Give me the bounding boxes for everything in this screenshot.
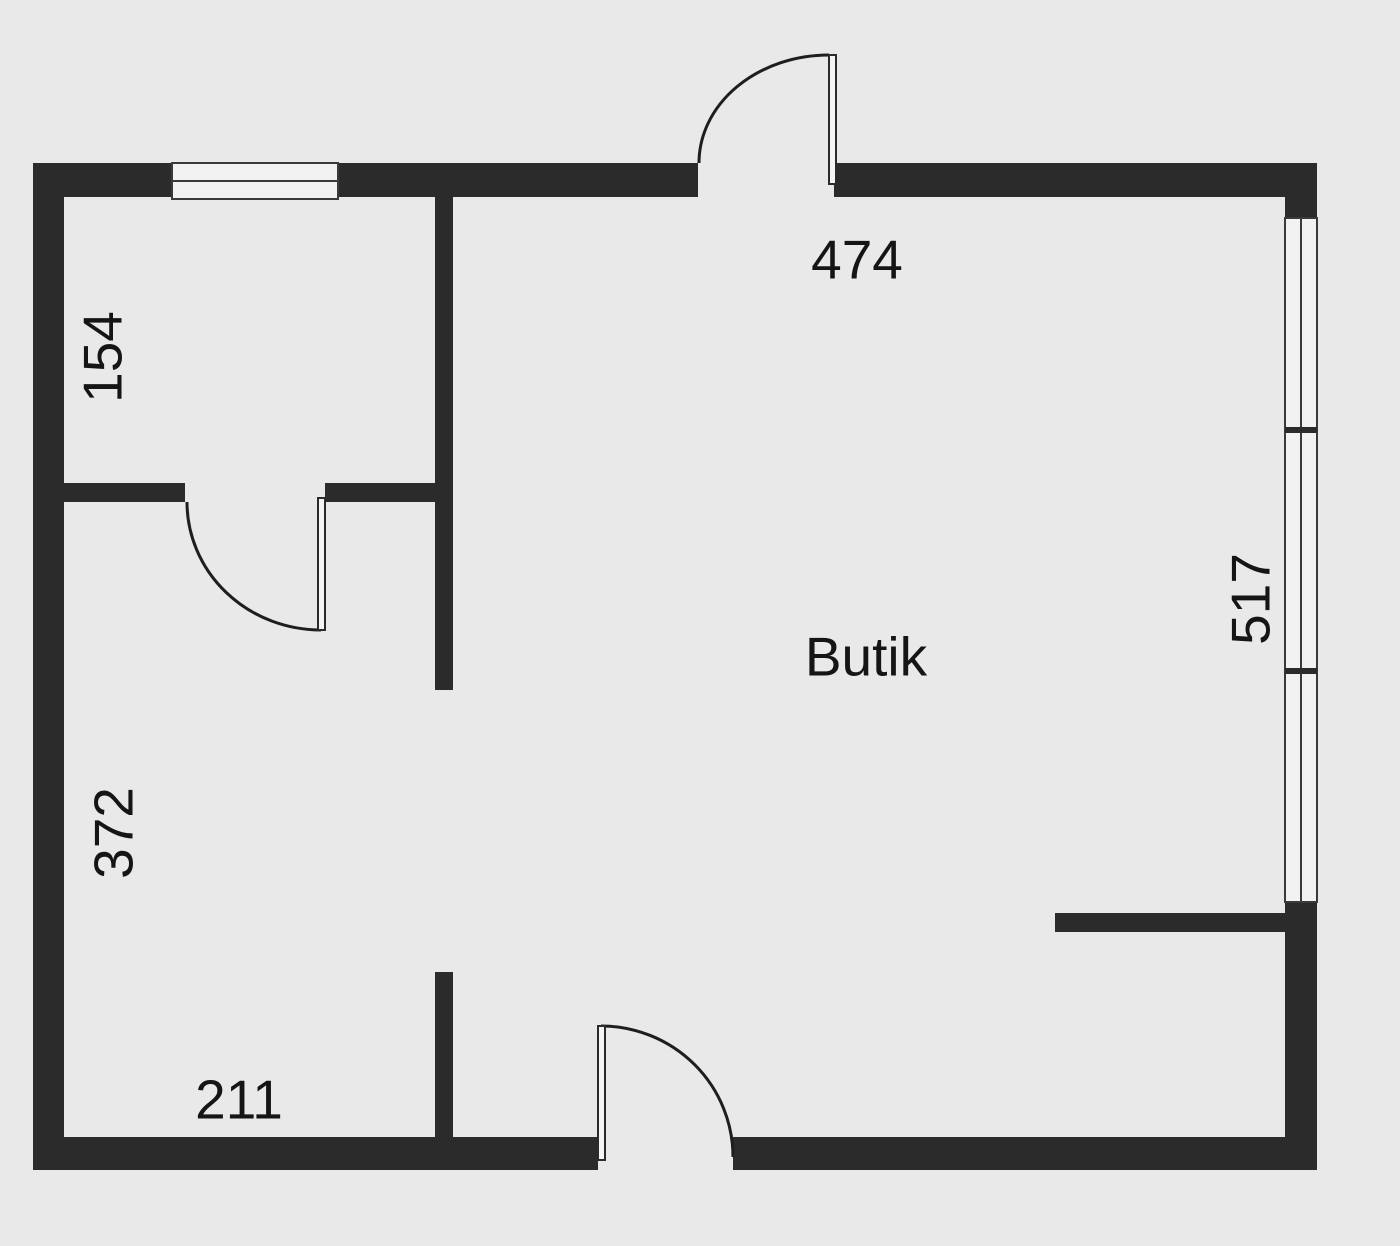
dimension-label-upper-left-room: 154: [76, 311, 131, 403]
partition-wall-horizontal-right: [325, 483, 453, 502]
floor-plan-canvas: 474 154 372 517 211 Butik: [0, 0, 1400, 1246]
left-wall: [33, 163, 64, 1170]
right-wall-top-segment: [1285, 163, 1317, 218]
partition-wall-vertical-upper: [435, 197, 453, 690]
entrance-door-leaf: [829, 55, 836, 184]
bottom-wall-left-segment: [33, 1137, 598, 1170]
top-wall-right-segment: [834, 163, 1317, 197]
top-wall-left-segment: [33, 163, 698, 197]
room-label-butik: Butik: [805, 630, 927, 685]
bottom-door-leaf: [598, 1026, 605, 1160]
dimension-label-right: 517: [1224, 553, 1279, 645]
interior-door-arc: [187, 502, 321, 630]
bottom-door-arc: [601, 1026, 733, 1157]
window-right-divider-1: [1285, 427, 1317, 433]
dimension-label-top: 474: [811, 233, 903, 288]
dimension-label-bottom: 211: [195, 1073, 283, 1128]
window-right-divider-2: [1285, 668, 1317, 674]
partition-wall-vertical-lower: [435, 972, 453, 1137]
partition-wall-horizontal-left: [64, 483, 185, 502]
floor-plan-drawing: [0, 0, 1400, 1246]
right-wall-bottom-segment: [1285, 902, 1317, 1170]
bottom-wall-right-segment: [733, 1137, 1317, 1170]
dimension-label-left: 372: [87, 787, 142, 879]
interior-door-leaf: [318, 498, 325, 630]
entrance-door-arc: [699, 55, 829, 163]
stub-wall-right: [1055, 913, 1285, 932]
